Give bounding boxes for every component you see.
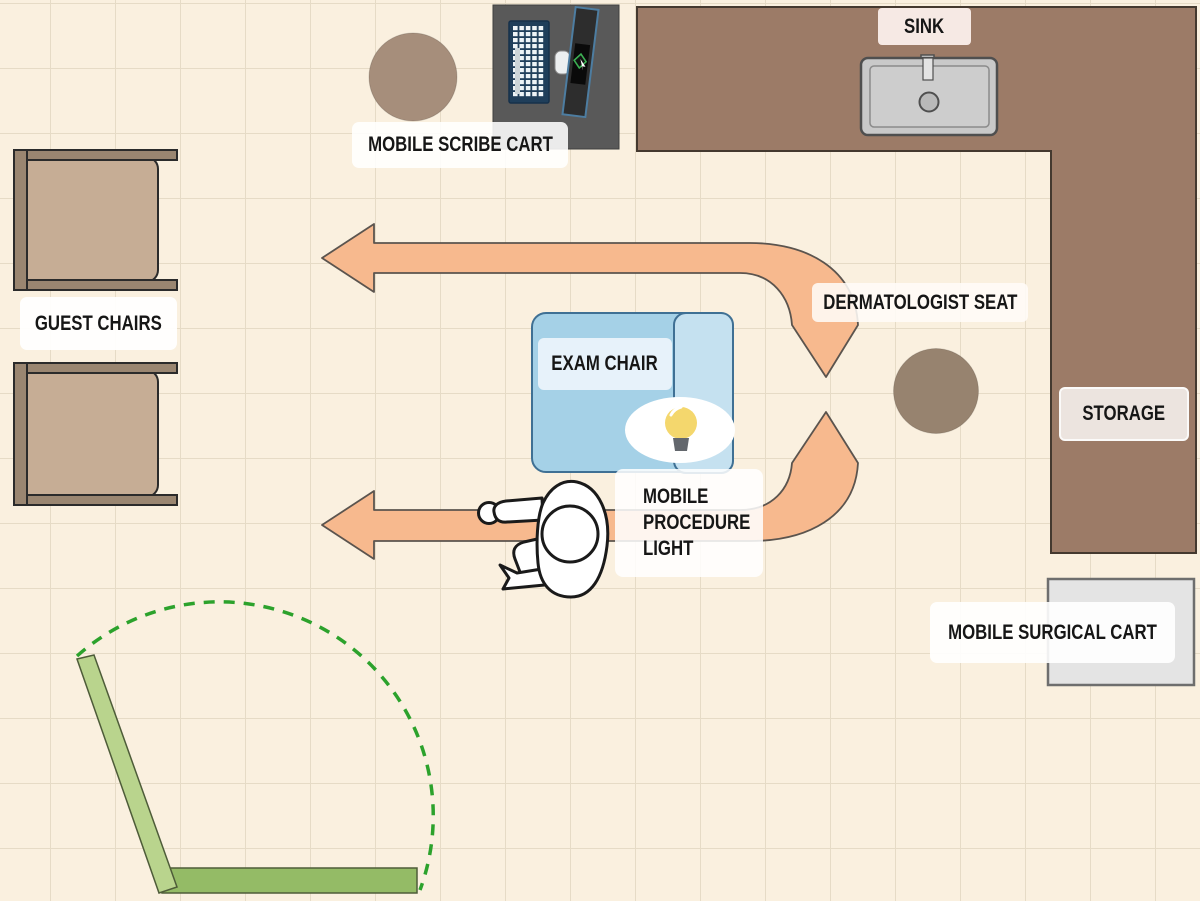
person-arm-upper [494,498,543,522]
person-layer [0,0,1200,901]
person-figure [479,481,608,597]
exam-room-floor-plan: SINK MOBILE SCRIBE CART GUEST CHAIRS EXA… [0,0,1200,901]
person-head [542,506,598,562]
